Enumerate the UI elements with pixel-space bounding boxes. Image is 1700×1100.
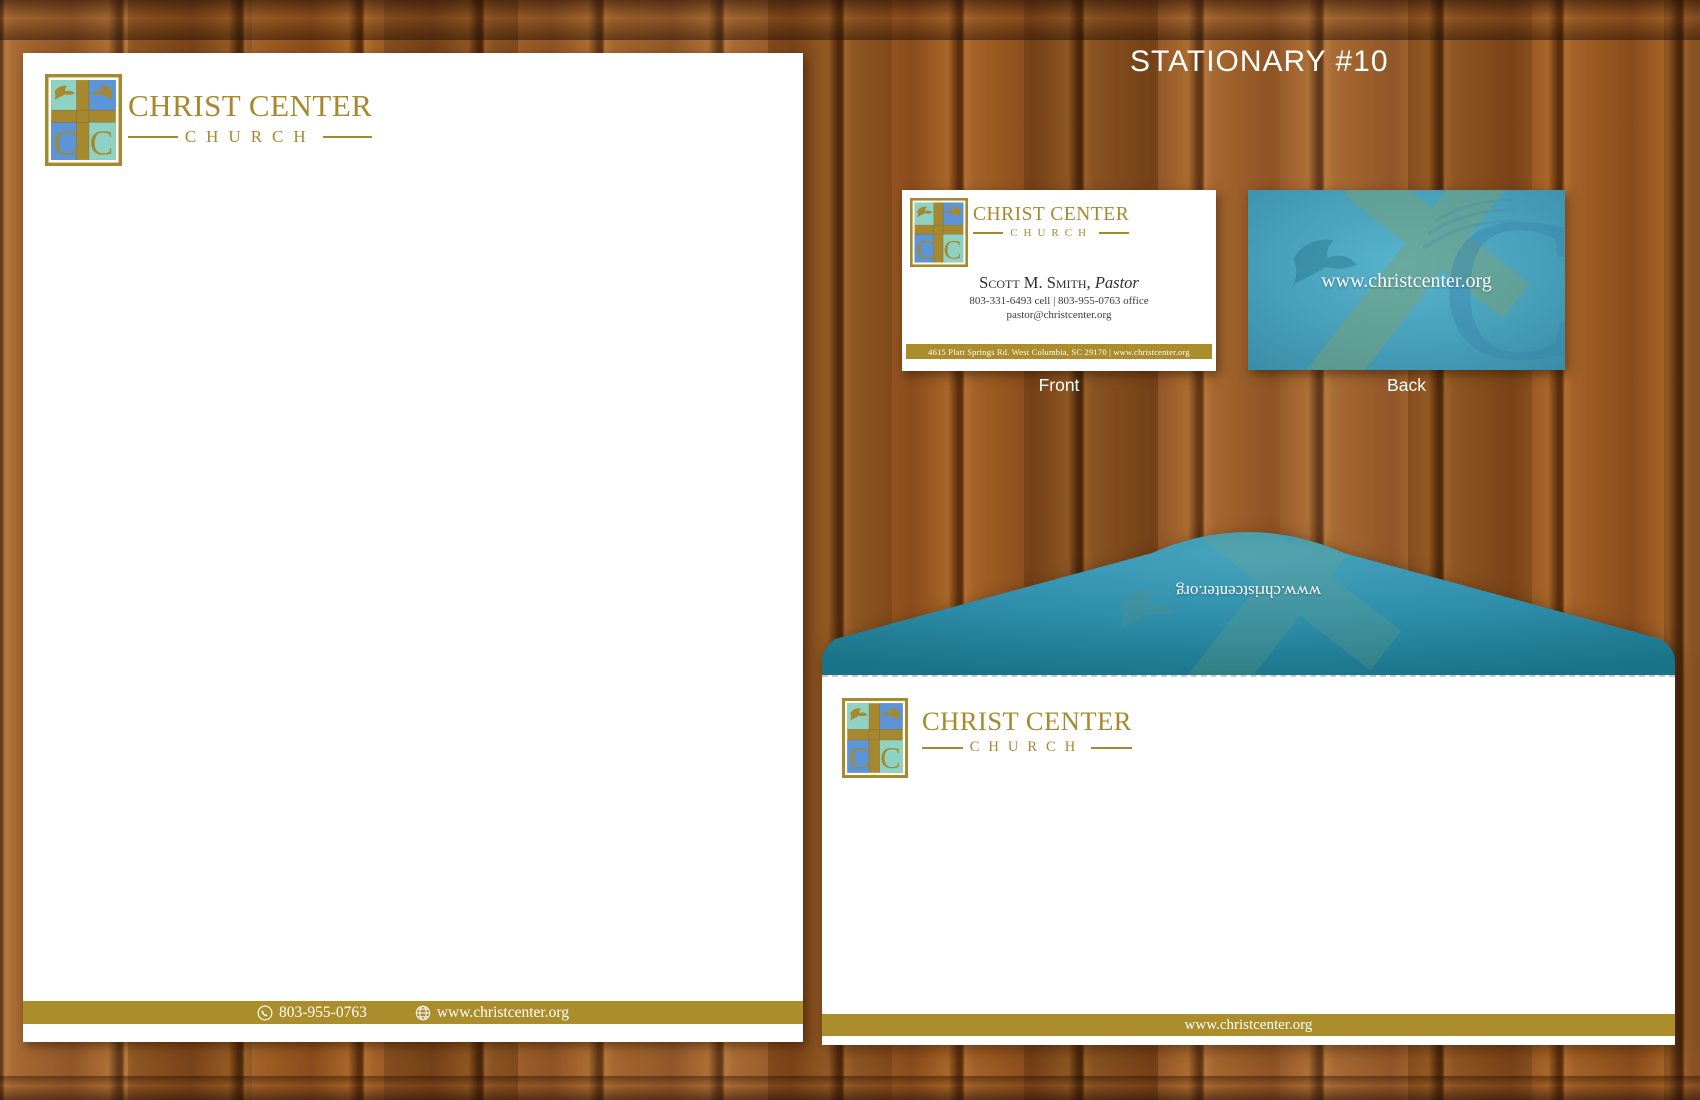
letterhead-logo: C C	[45, 74, 122, 166]
card-brand: CHRIST CENTER CHURCH	[973, 204, 1129, 239]
envelope-flap	[822, 525, 1675, 677]
contact-phones: 803-331-6493 cell | 803-955-0763 office	[902, 295, 1216, 307]
svg-text:C: C	[880, 741, 900, 775]
church-logo: C C	[45, 74, 122, 166]
brand-dash-left	[973, 232, 1003, 234]
svg-text:C: C	[90, 124, 114, 163]
brand-church: CHURCH	[970, 739, 1084, 756]
envelope-footer-url: www.christcenter.org	[1185, 1017, 1313, 1034]
church-logo: C C	[842, 698, 908, 778]
brand-dash-left	[922, 747, 963, 749]
card-back-url: www.christcenter.org	[1248, 270, 1565, 293]
church-logo: C C	[910, 198, 968, 267]
contact-name: Scott M. Smith,	[979, 273, 1091, 292]
svg-text:C: C	[944, 236, 962, 265]
brand-name: CHRIST CENTER	[128, 88, 372, 124]
front-label: Front	[902, 375, 1216, 396]
brand-dash-right	[1091, 747, 1132, 749]
contact-title: Pastor	[1095, 273, 1139, 292]
envelope-flap-url: www.christcenter.org	[822, 581, 1675, 601]
brand-church: CHURCH	[1010, 227, 1092, 239]
wood-bottom-band	[0, 1076, 1700, 1100]
letterhead-phone: 803-955-0763	[279, 1004, 367, 1022]
envelope: www.christcenter.org C C CHRIST CENTER C…	[822, 525, 1675, 1045]
svg-text:C: C	[53, 124, 77, 163]
back-label: Back	[1248, 375, 1565, 396]
phone-icon	[257, 1005, 273, 1021]
envelope-logo: C C	[842, 698, 908, 778]
envelope-body: C C CHRIST CENTER CHURCH www.christcente…	[822, 675, 1675, 1045]
contact-name-line: Scott M. Smith, Pastor	[902, 273, 1216, 293]
letterhead-phone-item: 803-955-0763	[257, 1004, 367, 1022]
brand-church: CHURCH	[185, 127, 316, 147]
letterhead-brand: CHRIST CENTER CHURCH	[128, 88, 372, 147]
brand-name: CHRIST CENTER	[973, 204, 1129, 226]
letterhead-website: www.christcenter.org	[437, 1004, 569, 1022]
brand-dash-left	[128, 136, 178, 138]
brand-dash-right	[1099, 232, 1129, 234]
business-card-front: C C CHRIST CENTER CHURCH Scott M. Smith,…	[902, 190, 1216, 371]
brand-dash-right	[323, 136, 373, 138]
svg-text:C: C	[849, 741, 869, 775]
letterhead-website-item: www.christcenter.org	[415, 1004, 569, 1022]
globe-icon	[415, 1005, 431, 1021]
brand-name: CHRIST CENTER	[922, 706, 1132, 737]
contact-email: pastor@christcenter.org	[902, 309, 1216, 321]
letterhead-footer-bar: 803-955-0763 www.christcenter.org	[23, 1001, 803, 1024]
card-logo: C C	[910, 198, 968, 267]
wood-top-band	[0, 0, 1700, 40]
envelope-brand: CHRIST CENTER CHURCH	[922, 706, 1132, 756]
business-card-back: C www.christcenter.org	[1248, 190, 1565, 370]
letterhead: C C CHRIST CENTER CHURCH 803-955-0763	[23, 53, 803, 1042]
card-address-bar: 4615 Platt Springs Rd. West Columbia, SC…	[906, 344, 1212, 359]
svg-text:C: C	[916, 236, 934, 265]
page-title: STATIONARY #10	[1130, 45, 1389, 79]
envelope-footer-bar: www.christcenter.org	[822, 1014, 1675, 1036]
stationery-mockup: STATIONARY #10 C C CHRIST CENTER CHURCH	[0, 0, 1700, 1100]
